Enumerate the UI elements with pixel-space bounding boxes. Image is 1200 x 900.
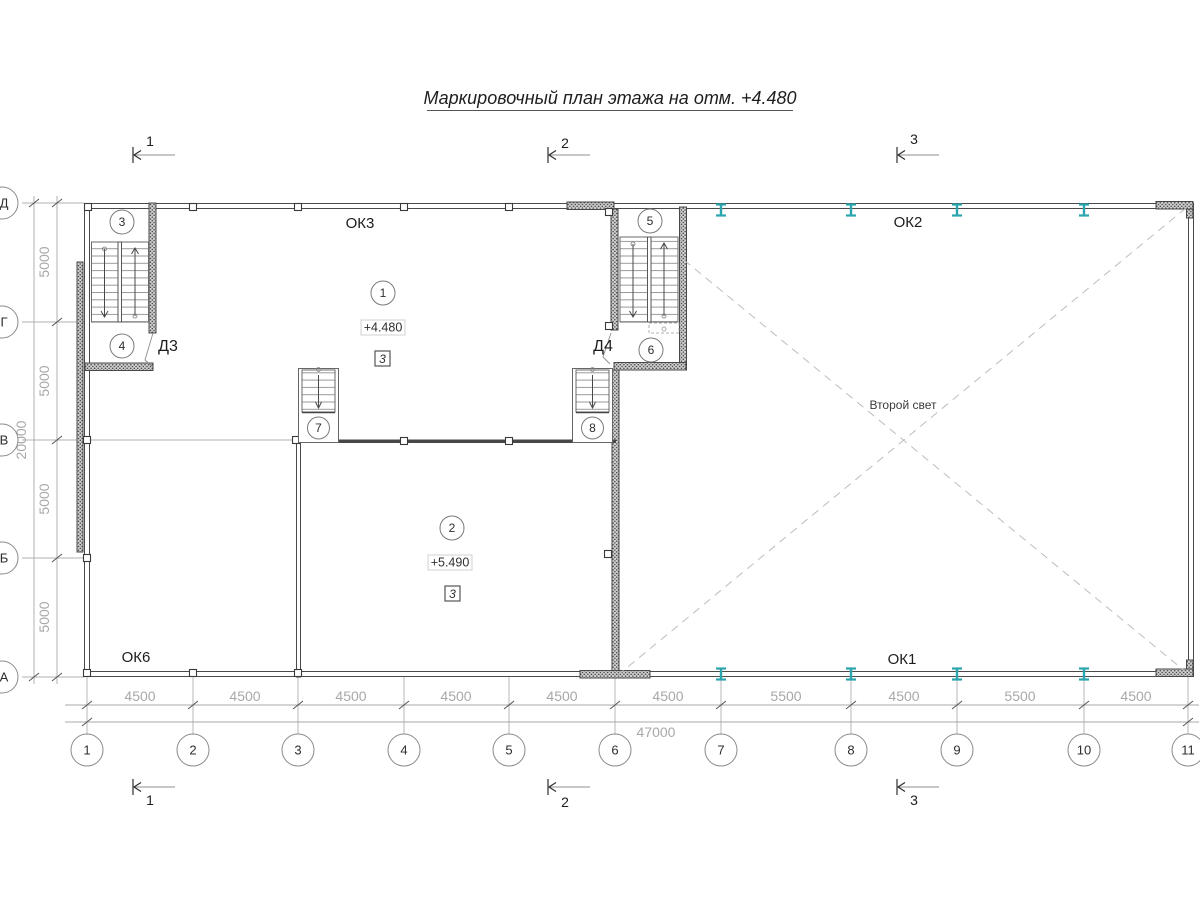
door-label-d3: Д3 <box>158 338 178 355</box>
section-mark-2-bottom: 2 <box>548 779 590 810</box>
room-tag-7: 7 <box>315 421 322 435</box>
column-bubble-6: 6 <box>611 743 618 758</box>
elevation-room2: +5.490 <box>431 556 470 570</box>
dim-col-9-10: 5500 <box>1004 688 1035 704</box>
column-bubble-3: 3 <box>294 743 301 758</box>
column-bubble-5: 5 <box>505 743 512 758</box>
window-label-ok3: ОК3 <box>346 215 375 232</box>
row-bubble-g: Г <box>0 315 7 330</box>
elevation-room1: +4.480 <box>364 321 403 335</box>
row-bubble-a: А <box>0 670 9 685</box>
column-bubble-7: 7 <box>717 743 724 758</box>
column-bubble-10: 10 <box>1077 743 1091 758</box>
steel-column-icons <box>716 205 1089 680</box>
door-swing-d3 <box>145 333 153 366</box>
column-bubble-8: 8 <box>847 743 854 758</box>
dim-col-7-8: 5500 <box>770 688 801 704</box>
corner-top-right-stub <box>1187 209 1194 218</box>
dim-col-4-5: 4500 <box>440 688 471 704</box>
exterior-wall-top <box>85 204 1194 209</box>
section-marks: 1 2 3 1 2 3 <box>133 131 939 810</box>
dim-col-8-9: 4500 <box>888 688 919 704</box>
section-mark-1-bottom: 1 <box>133 779 175 808</box>
room6-bottom-wall <box>614 363 686 371</box>
exterior-wall-right <box>1189 204 1194 677</box>
void-label: Второй свет <box>869 398 937 412</box>
room-tag-2: 2 <box>449 521 456 535</box>
window-label-ok6: ОК6 <box>122 649 151 666</box>
drawing-title: Маркировочный план этажа на отм. +4.480 <box>423 88 796 108</box>
dim-col-2-3: 4500 <box>229 688 260 704</box>
section-mark-3-top: 3 <box>897 131 939 163</box>
column-bubble-4: 4 <box>400 743 407 758</box>
floor-plan-svg: Маркировочный план этажа на отм. +4.480 … <box>0 0 1200 900</box>
room-tag-4: 4 <box>119 339 126 353</box>
corner-bottom-right <box>1156 669 1193 677</box>
column-bubble-11: 11 <box>1181 743 1195 758</box>
axis6-wall-base <box>580 671 650 679</box>
section-mark-2-top: 2 <box>548 135 590 163</box>
section-mark-3-bottom: 3 <box>897 779 939 808</box>
row-bubble-b: Б <box>0 551 8 566</box>
section-mark-1-top: 1 <box>133 133 175 163</box>
corner-top-right <box>1156 202 1193 210</box>
dim-col-6-7: 4500 <box>652 688 683 704</box>
floor-plan-canvas: Маркировочный план этажа на отм. +4.480 … <box>0 0 1200 900</box>
room2-left-wall <box>297 443 301 677</box>
column-bubble-1: 1 <box>83 743 90 758</box>
window-label-ok2: ОК2 <box>894 214 923 231</box>
room2-top-wall <box>296 440 616 444</box>
door-label-d4: Д4 <box>593 338 613 355</box>
section-number-3b: 3 <box>910 792 918 808</box>
dim-row-b-a: 5000 <box>36 601 52 632</box>
dim-row-g-v: 5000 <box>36 365 52 396</box>
room-tag-8: 8 <box>589 421 596 435</box>
dim-col-3-4: 4500 <box>335 688 366 704</box>
stair2-left-wall <box>611 209 618 330</box>
axis6-wall <box>612 370 619 677</box>
column-bubble-9: 9 <box>953 743 960 758</box>
row-bubbles: Д Г В Б А <box>0 187 18 693</box>
column-bubbles: 1 2 3 4 5 6 7 8 9 10 11 <box>71 734 1200 766</box>
layout-mark-room1: 3 <box>379 352 386 366</box>
room-tag-6: 6 <box>648 343 655 357</box>
dim-row-v-b: 5000 <box>36 483 52 514</box>
dim-col-5-6: 4500 <box>546 688 577 704</box>
grid-dimensions: 4500 4500 4500 4500 4500 4500 5500 4500 … <box>0 187 1200 766</box>
room4-bottom-wall <box>85 363 153 371</box>
room-tag-3: 3 <box>119 215 126 229</box>
section-number-1b: 1 <box>146 792 154 808</box>
section-number-1: 1 <box>146 133 154 149</box>
stair2-right-wall <box>680 207 687 370</box>
dim-col-1-2: 4500 <box>124 688 155 704</box>
dim-row-d-g: 5000 <box>36 246 52 277</box>
section-number-3: 3 <box>910 131 918 147</box>
column-bubble-2: 2 <box>189 743 196 758</box>
layout-mark-room2: 3 <box>449 587 456 601</box>
wall-left-outer <box>77 262 83 552</box>
corner-bottom-right-stub <box>1187 660 1194 669</box>
annotations: 1 2 3 4 5 6 7 8 +4.480 +5.490 3 3 ОК3 ОК… <box>110 209 922 668</box>
room-tag-1: 1 <box>380 286 387 300</box>
stair1-right-wall <box>149 203 156 333</box>
dim-col-10-11: 4500 <box>1120 688 1151 704</box>
dim-total-width: 47000 <box>637 724 676 740</box>
row-bubble-v: В <box>0 433 8 448</box>
void-area: Второй свет <box>618 208 1186 675</box>
room-tag-5: 5 <box>647 214 654 228</box>
section-number-2b: 2 <box>561 794 569 810</box>
row-bubble-d: Д <box>0 196 9 211</box>
window-label-ok1: ОК1 <box>888 651 917 668</box>
section-number-2: 2 <box>561 135 569 151</box>
stairs <box>92 237 680 443</box>
